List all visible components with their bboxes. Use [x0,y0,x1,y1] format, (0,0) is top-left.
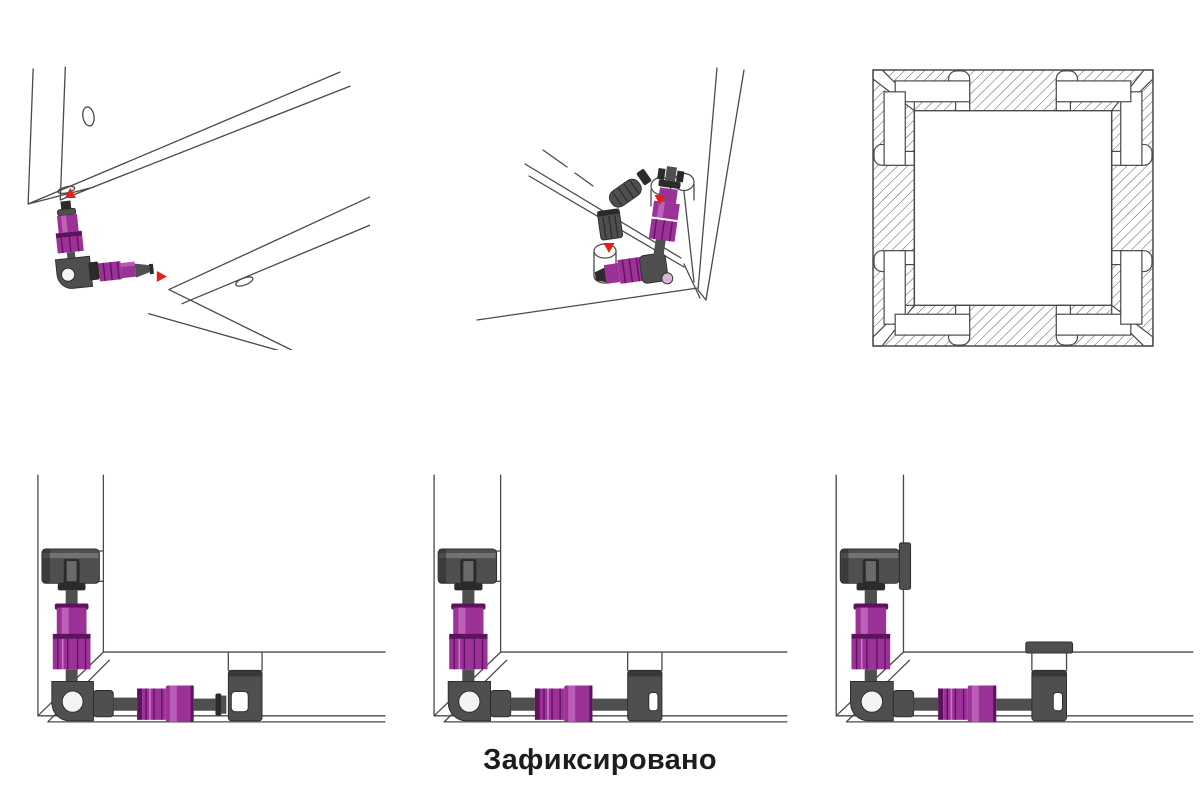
panel-cutaway-engaged [424,462,792,735]
anchor-barrel [1032,670,1067,721]
frame-cross-section [873,70,1153,346]
insert-direction-arrow-icon [157,271,167,282]
corner-connector [49,193,154,290]
anchor-barrel [628,670,662,721]
panel-cutaway-locked [826,462,1198,735]
locking-cap [1026,642,1073,653]
connector-cutaway [42,549,262,722]
caption: Зафиксировано [0,744,1200,777]
barrel-nut-floating [597,209,623,241]
connector-vertical-arm [647,165,685,258]
anchor-barrel [228,670,262,721]
panel-frame-cross-section [869,66,1157,350]
assembly-instruction-sheet: Зафиксировано [0,0,1200,800]
connector-cutaway [840,543,1072,722]
panel-step-insert-barrel-nuts [455,52,777,354]
panel-step-align-connector [8,56,370,350]
panel-cutaway-inserted [28,462,390,735]
dowel-hole [81,106,95,127]
barrel-nut-floating [606,168,655,210]
locking-cap [899,543,910,590]
connector-cutaway [438,549,662,722]
board-top [28,67,350,204]
board-bottom [149,197,370,350]
